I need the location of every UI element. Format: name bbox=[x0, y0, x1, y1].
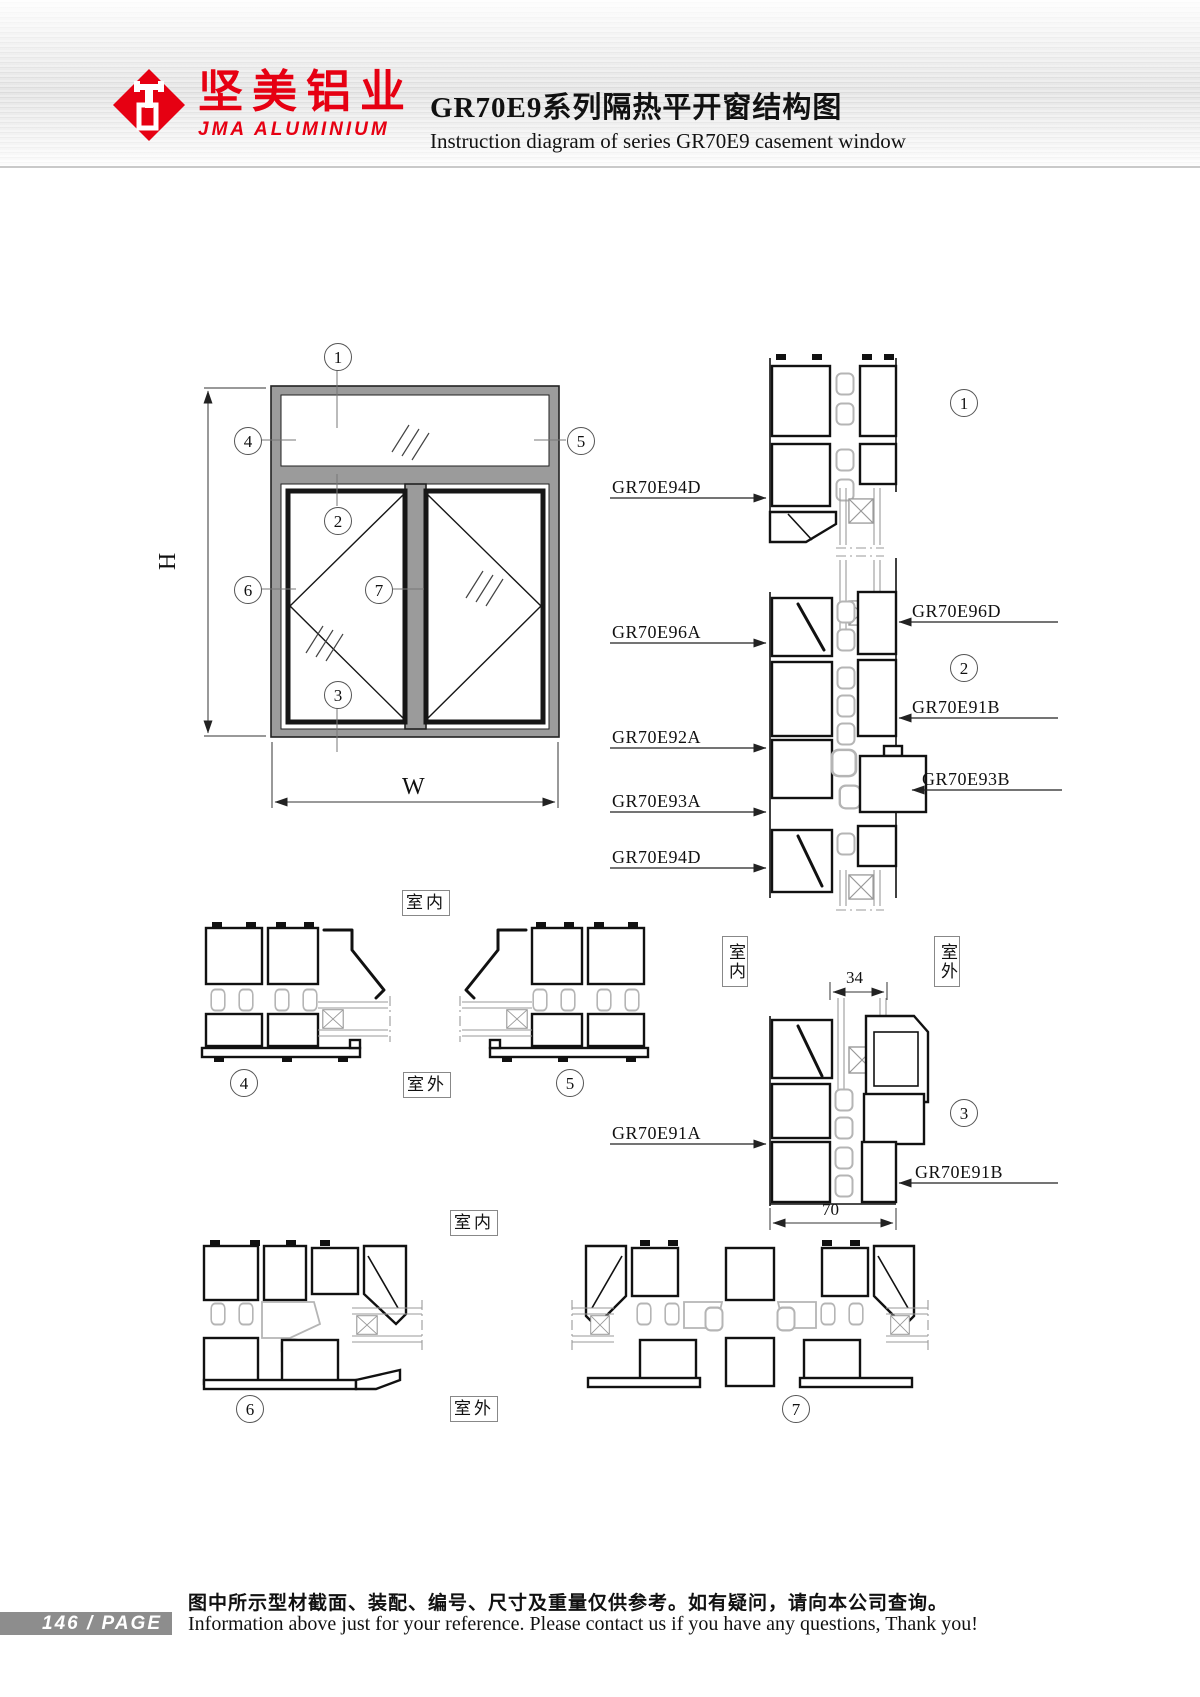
elev-callout-5: 5 bbox=[567, 427, 595, 455]
part-label-gr70e92a: GR70E92A bbox=[612, 727, 701, 748]
part-label-gr70e93a: GR70E93A bbox=[612, 791, 701, 812]
section-1-drawing bbox=[770, 354, 896, 548]
section-7-number: 7 bbox=[782, 1395, 810, 1423]
section-4-drawing bbox=[202, 922, 390, 1062]
outdoor-label-sec3: 室外 bbox=[934, 936, 960, 987]
catalog-page: 坚美铝业 JMA ALUMINIUM GR70E9系列隔热平开窗结构图 Inst… bbox=[0, 0, 1200, 1697]
section-3-drawing bbox=[770, 982, 928, 1230]
dim-34-label: 34 bbox=[846, 968, 863, 988]
part-label-gr70e96a: GR70E96A bbox=[612, 622, 701, 643]
elev-callout-2: 2 bbox=[324, 507, 352, 535]
part-label-gr70e91a: GR70E91A bbox=[612, 1123, 701, 1144]
dim-height-label: H bbox=[155, 553, 182, 570]
elev-callout-7: 7 bbox=[365, 576, 393, 604]
section-2-number: 2 bbox=[950, 654, 978, 682]
part-label-gr70e91b-bottom: GR70E91B bbox=[915, 1162, 1003, 1183]
indoor-label-row1: 室内 bbox=[402, 890, 450, 916]
section-5-drawing bbox=[460, 922, 648, 1062]
part-label-gr70e94d-bottom: GR70E94D bbox=[612, 847, 701, 868]
section-5-number: 5 bbox=[556, 1069, 584, 1097]
dim-70-label: 70 bbox=[822, 1200, 839, 1220]
section-6-drawing bbox=[204, 1240, 422, 1389]
part-label-gr70e91b-top: GR70E91B bbox=[912, 697, 1000, 718]
section-7-center bbox=[706, 1248, 795, 1386]
footer-note-en: Information above just for your referenc… bbox=[188, 1613, 978, 1636]
dim-width-label: W bbox=[402, 774, 425, 801]
elev-callout-1: 1 bbox=[324, 343, 352, 371]
indoor-label-row2: 室内 bbox=[450, 1210, 498, 1236]
section-1-number: 1 bbox=[950, 389, 978, 417]
part-label-gr70e96d: GR70E96D bbox=[912, 601, 1001, 622]
footer-note-cn: 图中所示型材截面、装配、编号、尺寸及重量仅供参考。如有疑问，请向本公司查询。 bbox=[188, 1588, 948, 1615]
elev-callout-6: 6 bbox=[234, 576, 262, 604]
indoor-label-sec3: 室内 bbox=[722, 936, 748, 987]
section-3-number: 3 bbox=[950, 1099, 978, 1127]
part-label-gr70e93b: GR70E93B bbox=[922, 769, 1010, 790]
elev-callout-4: 4 bbox=[234, 427, 262, 455]
section-2-drawing bbox=[770, 556, 926, 910]
outdoor-label-row1: 室外 bbox=[403, 1072, 451, 1098]
page-number-band: 146 / PAGE bbox=[0, 1612, 172, 1635]
section-4-number: 4 bbox=[230, 1069, 258, 1097]
section-6-number: 6 bbox=[236, 1395, 264, 1423]
elev-callout-3: 3 bbox=[324, 681, 352, 709]
section-7-drawing bbox=[572, 1240, 722, 1387]
outdoor-label-row2: 室外 bbox=[450, 1396, 498, 1422]
line-art bbox=[0, 0, 1200, 1697]
part-label-gr70e94d-top: GR70E94D bbox=[612, 477, 701, 498]
